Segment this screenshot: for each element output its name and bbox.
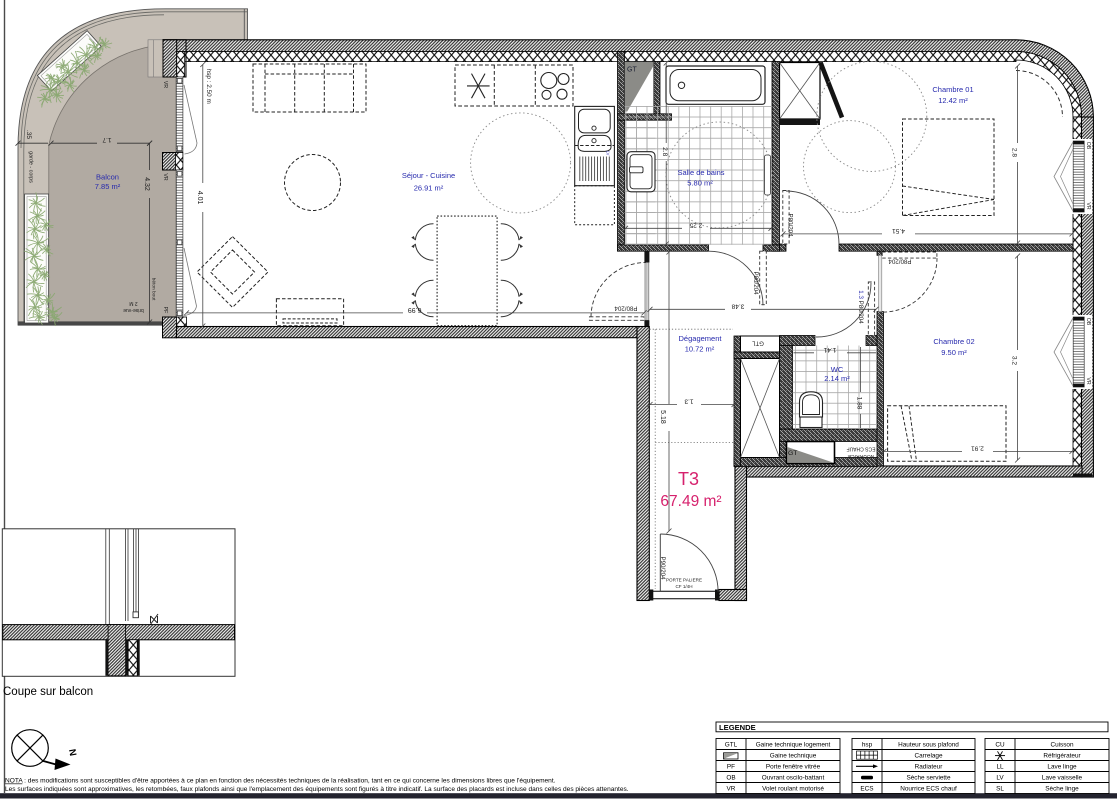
svg-text:Sèche linge: Sèche linge	[1045, 786, 1079, 793]
svg-text:ECS: ECS	[860, 786, 873, 793]
svg-text:Porte fenêtre vitrée: Porte fenêtre vitrée	[766, 764, 821, 771]
svg-text:CF 1/4H: CF 1/4H	[675, 584, 692, 589]
svg-text:2.91: 2.91	[971, 444, 984, 451]
svg-text:2 M: 2 M	[129, 300, 137, 306]
svg-text:Sèche serviette: Sèche serviette	[906, 775, 950, 782]
svg-text:Ouvrant oscilo-battant: Ouvrant oscilo-battant	[762, 775, 825, 782]
svg-text:LV: LV	[606, 151, 611, 156]
svg-text:10.72 m²: 10.72 m²	[685, 345, 715, 354]
svg-text:NOTA : des modifications sont: NOTA : des modifications sont susceptibl…	[5, 778, 556, 785]
svg-text:VR: VR	[727, 786, 736, 793]
svg-text:Hauteur sous plafond: Hauteur sous plafond	[898, 742, 959, 749]
svg-text:1.7: 1.7	[102, 136, 111, 143]
svg-text:hsp: hsp	[862, 742, 873, 749]
svg-text:SL: SL	[996, 786, 1004, 793]
svg-text:1.3: 1.3	[684, 398, 693, 405]
svg-text:LL: LL	[996, 764, 1004, 771]
svg-text:Balcon: Balcon	[96, 173, 119, 182]
svg-text:3.48: 3.48	[731, 302, 744, 309]
svg-text:Carrelage: Carrelage	[914, 753, 943, 760]
svg-text:Cuisson: Cuisson	[1050, 742, 1074, 749]
svg-text:12.42 m²: 12.42 m²	[938, 96, 968, 105]
svg-text:Lave vaisselle: Lave vaisselle	[1042, 775, 1083, 782]
svg-text:Gaine technique: Gaine technique	[770, 753, 817, 760]
svg-text:T3: T3	[678, 469, 699, 489]
svg-text:9.50 m²: 9.50 m²	[941, 348, 967, 357]
svg-text:PF: PF	[162, 307, 168, 314]
svg-text:P80/204: P80/204	[614, 305, 638, 312]
svg-text:GT: GT	[788, 450, 797, 457]
svg-text:hsp : 2.50 m: hsp : 2.50 m	[205, 69, 212, 104]
svg-text:ECS CHAUF: ECS CHAUF	[847, 446, 876, 452]
svg-text:Les surfaces indiquées sont ap: Les surfaces indiquées sont approximativ…	[5, 786, 629, 793]
svg-text:P90/204: P90/204	[659, 556, 666, 580]
svg-text:PF: PF	[727, 764, 735, 771]
svg-text:NOURRICE: NOURRICE	[847, 453, 874, 459]
svg-text:Salle de bains: Salle de bains	[677, 168, 724, 177]
svg-text:5.80 m²: 5.80 m²	[687, 179, 713, 188]
svg-text:OB: OB	[1085, 318, 1091, 326]
svg-text:Séjour - Cuisine: Séjour - Cuisine	[402, 171, 455, 180]
svg-text:Réfrigérateur: Réfrigérateur	[1043, 753, 1081, 760]
svg-text:5.18: 5.18	[659, 410, 666, 424]
svg-text:WC: WC	[831, 365, 844, 374]
svg-text:1.3 P80/204: 1.3 P80/204	[857, 290, 864, 324]
svg-text:1.41: 1.41	[823, 346, 836, 353]
svg-text:67.49 m²: 67.49 m²	[660, 493, 721, 510]
svg-text:Radiateur: Radiateur	[915, 764, 944, 771]
svg-text:P80/204: P80/204	[752, 271, 759, 295]
svg-text:GTL: GTL	[752, 340, 764, 346]
svg-text:4.51: 4.51	[892, 227, 905, 234]
svg-text:béton bout: béton bout	[151, 278, 157, 301]
svg-text:Volet roulant motorisé: Volet roulant motorisé	[762, 786, 824, 793]
svg-text:7.85 m²: 7.85 m²	[95, 182, 121, 191]
svg-text:4.01: 4.01	[196, 191, 203, 205]
svg-text:CU: CU	[995, 742, 1005, 749]
svg-text:2.8: 2.8	[1010, 148, 1017, 157]
svg-text:VR: VR	[162, 173, 168, 180]
svg-text:VR: VR	[1085, 377, 1091, 384]
svg-text:VR: VR	[1085, 202, 1091, 209]
svg-text:Gaine technique logement: Gaine technique logement	[756, 742, 831, 749]
svg-text:Lave linge: Lave linge	[1047, 764, 1077, 771]
svg-text:OB: OB	[1085, 142, 1091, 150]
svg-text:GTL: GTL	[725, 742, 738, 749]
svg-text:3.2: 3.2	[1010, 356, 1017, 365]
svg-text:1.88: 1.88	[855, 397, 862, 410]
svg-text:2.25: 2.25	[689, 221, 702, 228]
svg-text:garde - corps: garde - corps	[28, 151, 34, 183]
svg-text:VR: VR	[162, 81, 168, 88]
svg-text:4.32: 4.32	[143, 177, 150, 191]
svg-text:6.99: 6.99	[408, 306, 422, 313]
svg-text:Chambre 02: Chambre 02	[933, 337, 974, 346]
svg-text:PORTE PALIERE: PORTE PALIERE	[666, 578, 702, 583]
svg-text:2.8: 2.8	[661, 147, 668, 156]
svg-text:OB: OB	[726, 775, 735, 782]
svg-text:brise-vue: brise-vue	[123, 307, 144, 313]
svg-text:Nourrice ECS chauf: Nourrice ECS chauf	[900, 786, 957, 793]
svg-text:P80/204: P80/204	[888, 258, 912, 265]
svg-text:LEGENDE: LEGENDE	[719, 723, 756, 732]
svg-text:GT: GT	[627, 67, 637, 74]
svg-text:Chambre 01: Chambre 01	[932, 85, 973, 94]
svg-text:26.91 m²: 26.91 m²	[414, 184, 444, 193]
svg-text:Dégagement: Dégagement	[679, 334, 723, 343]
svg-text:Coupe sur balcon: Coupe sur balcon	[3, 686, 93, 698]
svg-text:LV: LV	[996, 775, 1004, 782]
svg-text:.35: .35	[25, 130, 32, 139]
svg-text:2.14 m²: 2.14 m²	[824, 374, 850, 383]
